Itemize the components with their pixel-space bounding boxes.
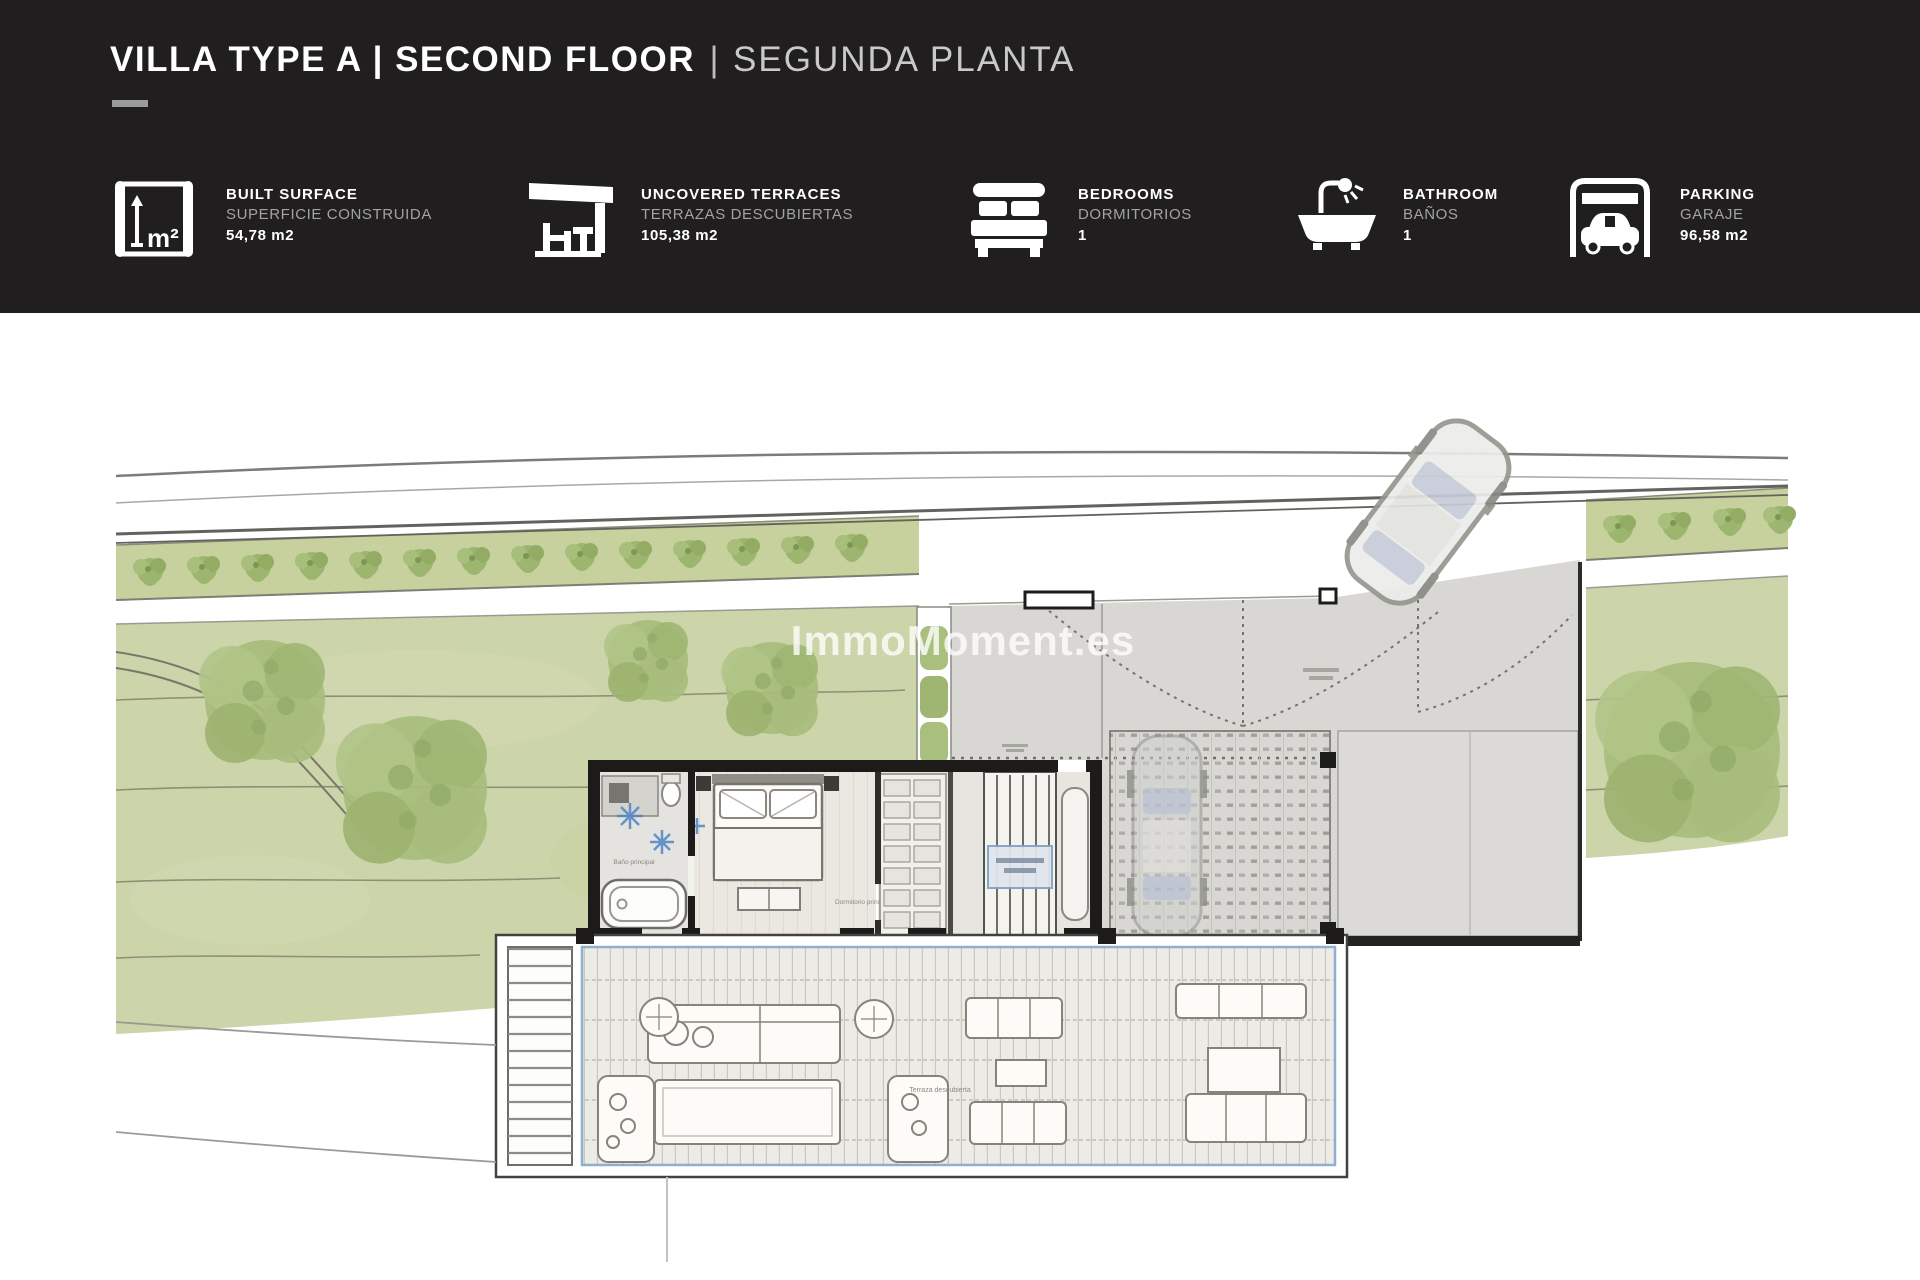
stat-value: 105,38 m2 — [641, 225, 853, 246]
parking-space — [1110, 731, 1336, 938]
building: Baño principal Dormitorio principal — [588, 760, 1102, 944]
stat-value: 54,78 m2 — [226, 225, 432, 246]
stat-label-es: GARAJE — [1680, 205, 1755, 225]
title-underline — [112, 100, 148, 107]
stat-label-en: PARKING — [1680, 185, 1755, 205]
wardrobe — [880, 774, 946, 936]
staircase — [984, 772, 1088, 938]
parking-icon — [1566, 171, 1654, 265]
stat-label-en: BEDROOMS — [1078, 185, 1192, 205]
stat-label-es: TERRAZAS DESCUBIERTAS — [641, 205, 853, 225]
page-title-subtitle: SEGUNDA PLANTA — [733, 40, 1075, 79]
bedrooms-icon — [965, 171, 1053, 265]
gate-post — [1320, 589, 1336, 603]
parked-car-outline — [1127, 736, 1207, 936]
terrace: Terraza descubierta — [496, 928, 1347, 1177]
bathroom-icon — [1293, 171, 1381, 265]
stat-label-es: DORMITORIOS — [1078, 205, 1192, 225]
stair-label-box — [988, 846, 1052, 888]
built-surface-icon: m² — [110, 171, 198, 265]
bathroom-label: Baño principal — [613, 859, 655, 866]
terrace-label: Terraza descubierta — [909, 1087, 971, 1094]
gate-leaf — [1025, 592, 1093, 608]
stat-label-en: BUILT SURFACE — [226, 185, 432, 205]
road — [116, 452, 1788, 543]
stat-label-es: SUPERFICIE CONSTRUIDA — [226, 205, 432, 225]
stat-label-en: BATHROOM — [1403, 185, 1498, 205]
page-title: VILLA TYPE A | SECOND FLOOR | SEGUNDA PL… — [110, 40, 1075, 80]
stat-label-es: BAÑOS — [1403, 205, 1498, 225]
stat-label-en: UNCOVERED TERRACES — [641, 185, 853, 205]
stat-value: 1 — [1403, 225, 1498, 246]
header-band: VILLA TYPE A | SECOND FLOOR | SEGUNDA PL… — [0, 0, 1920, 313]
stat-value: 1 — [1078, 225, 1192, 246]
page-title-separator: | — [710, 40, 719, 79]
watermark-text: ImmoMoment.es — [791, 617, 1135, 664]
driveway-side-panel — [1338, 731, 1578, 936]
page-title-main: VILLA TYPE A | SECOND FLOOR — [110, 40, 695, 79]
svg-text:m²: m² — [147, 223, 179, 253]
stat-value: 96,58 m2 — [1680, 225, 1755, 246]
uncovered-terraces-icon — [527, 171, 615, 265]
